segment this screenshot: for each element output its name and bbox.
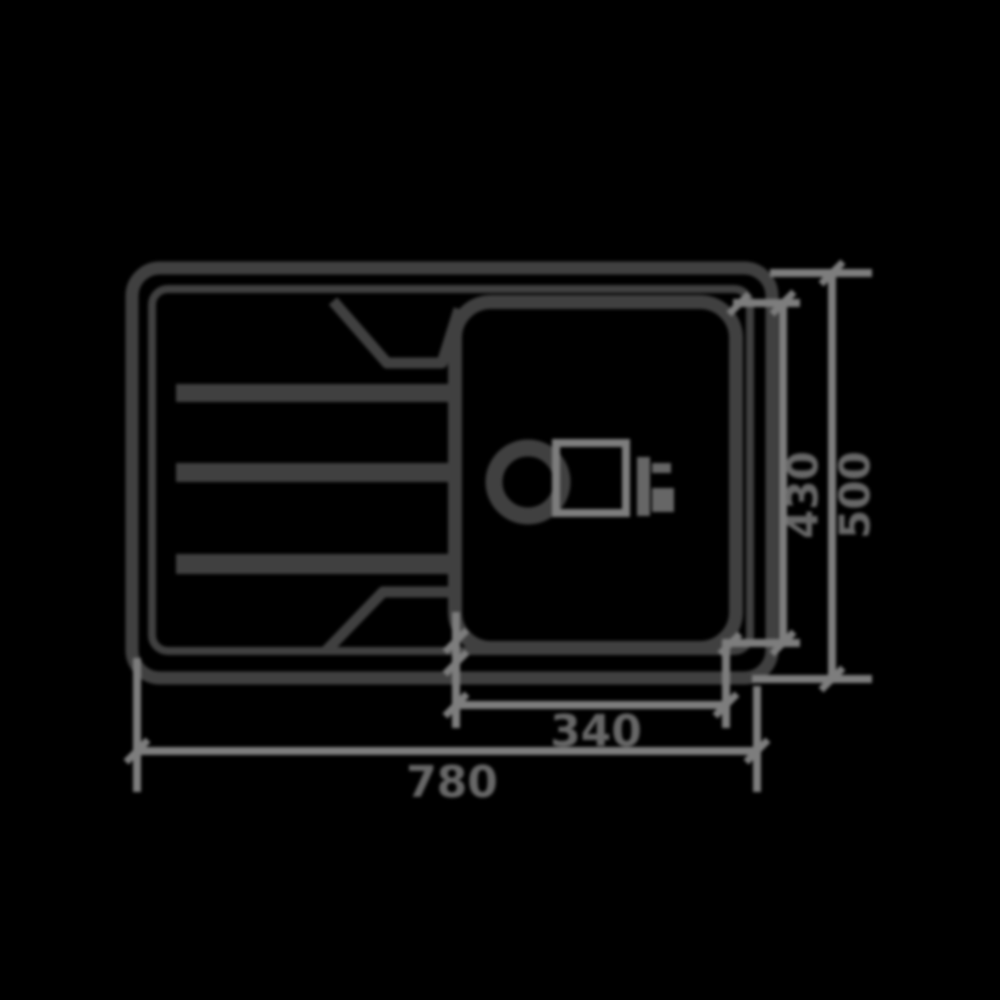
faucet-hole-icon — [494, 448, 562, 516]
faucet-fitting-bar — [637, 457, 650, 516]
drainboard-grooves — [176, 384, 453, 574]
dimension-label-overall-width: 780 — [406, 757, 498, 808]
drainboard-groove-top — [176, 384, 453, 402]
faucet-fitting-icon — [637, 457, 674, 516]
sink-drawing-canvas: 500 430 340 — [0, 0, 1000, 1000]
faucet-fitting-square — [652, 488, 674, 512]
faucet-fitting-dash — [652, 463, 671, 473]
dimension-label-bowl-depth: 430 — [779, 451, 828, 539]
sink-dimension-diagram: 500 430 340 — [0, 0, 1000, 1000]
drain-channel-top — [333, 301, 459, 363]
drain-channel-bottom — [326, 592, 452, 651]
drainboard-groove-middle — [176, 463, 453, 482]
drainboard-groove-bottom — [176, 554, 453, 574]
dimension-label-overall-depth: 500 — [831, 451, 880, 539]
faucet-area — [494, 443, 674, 516]
